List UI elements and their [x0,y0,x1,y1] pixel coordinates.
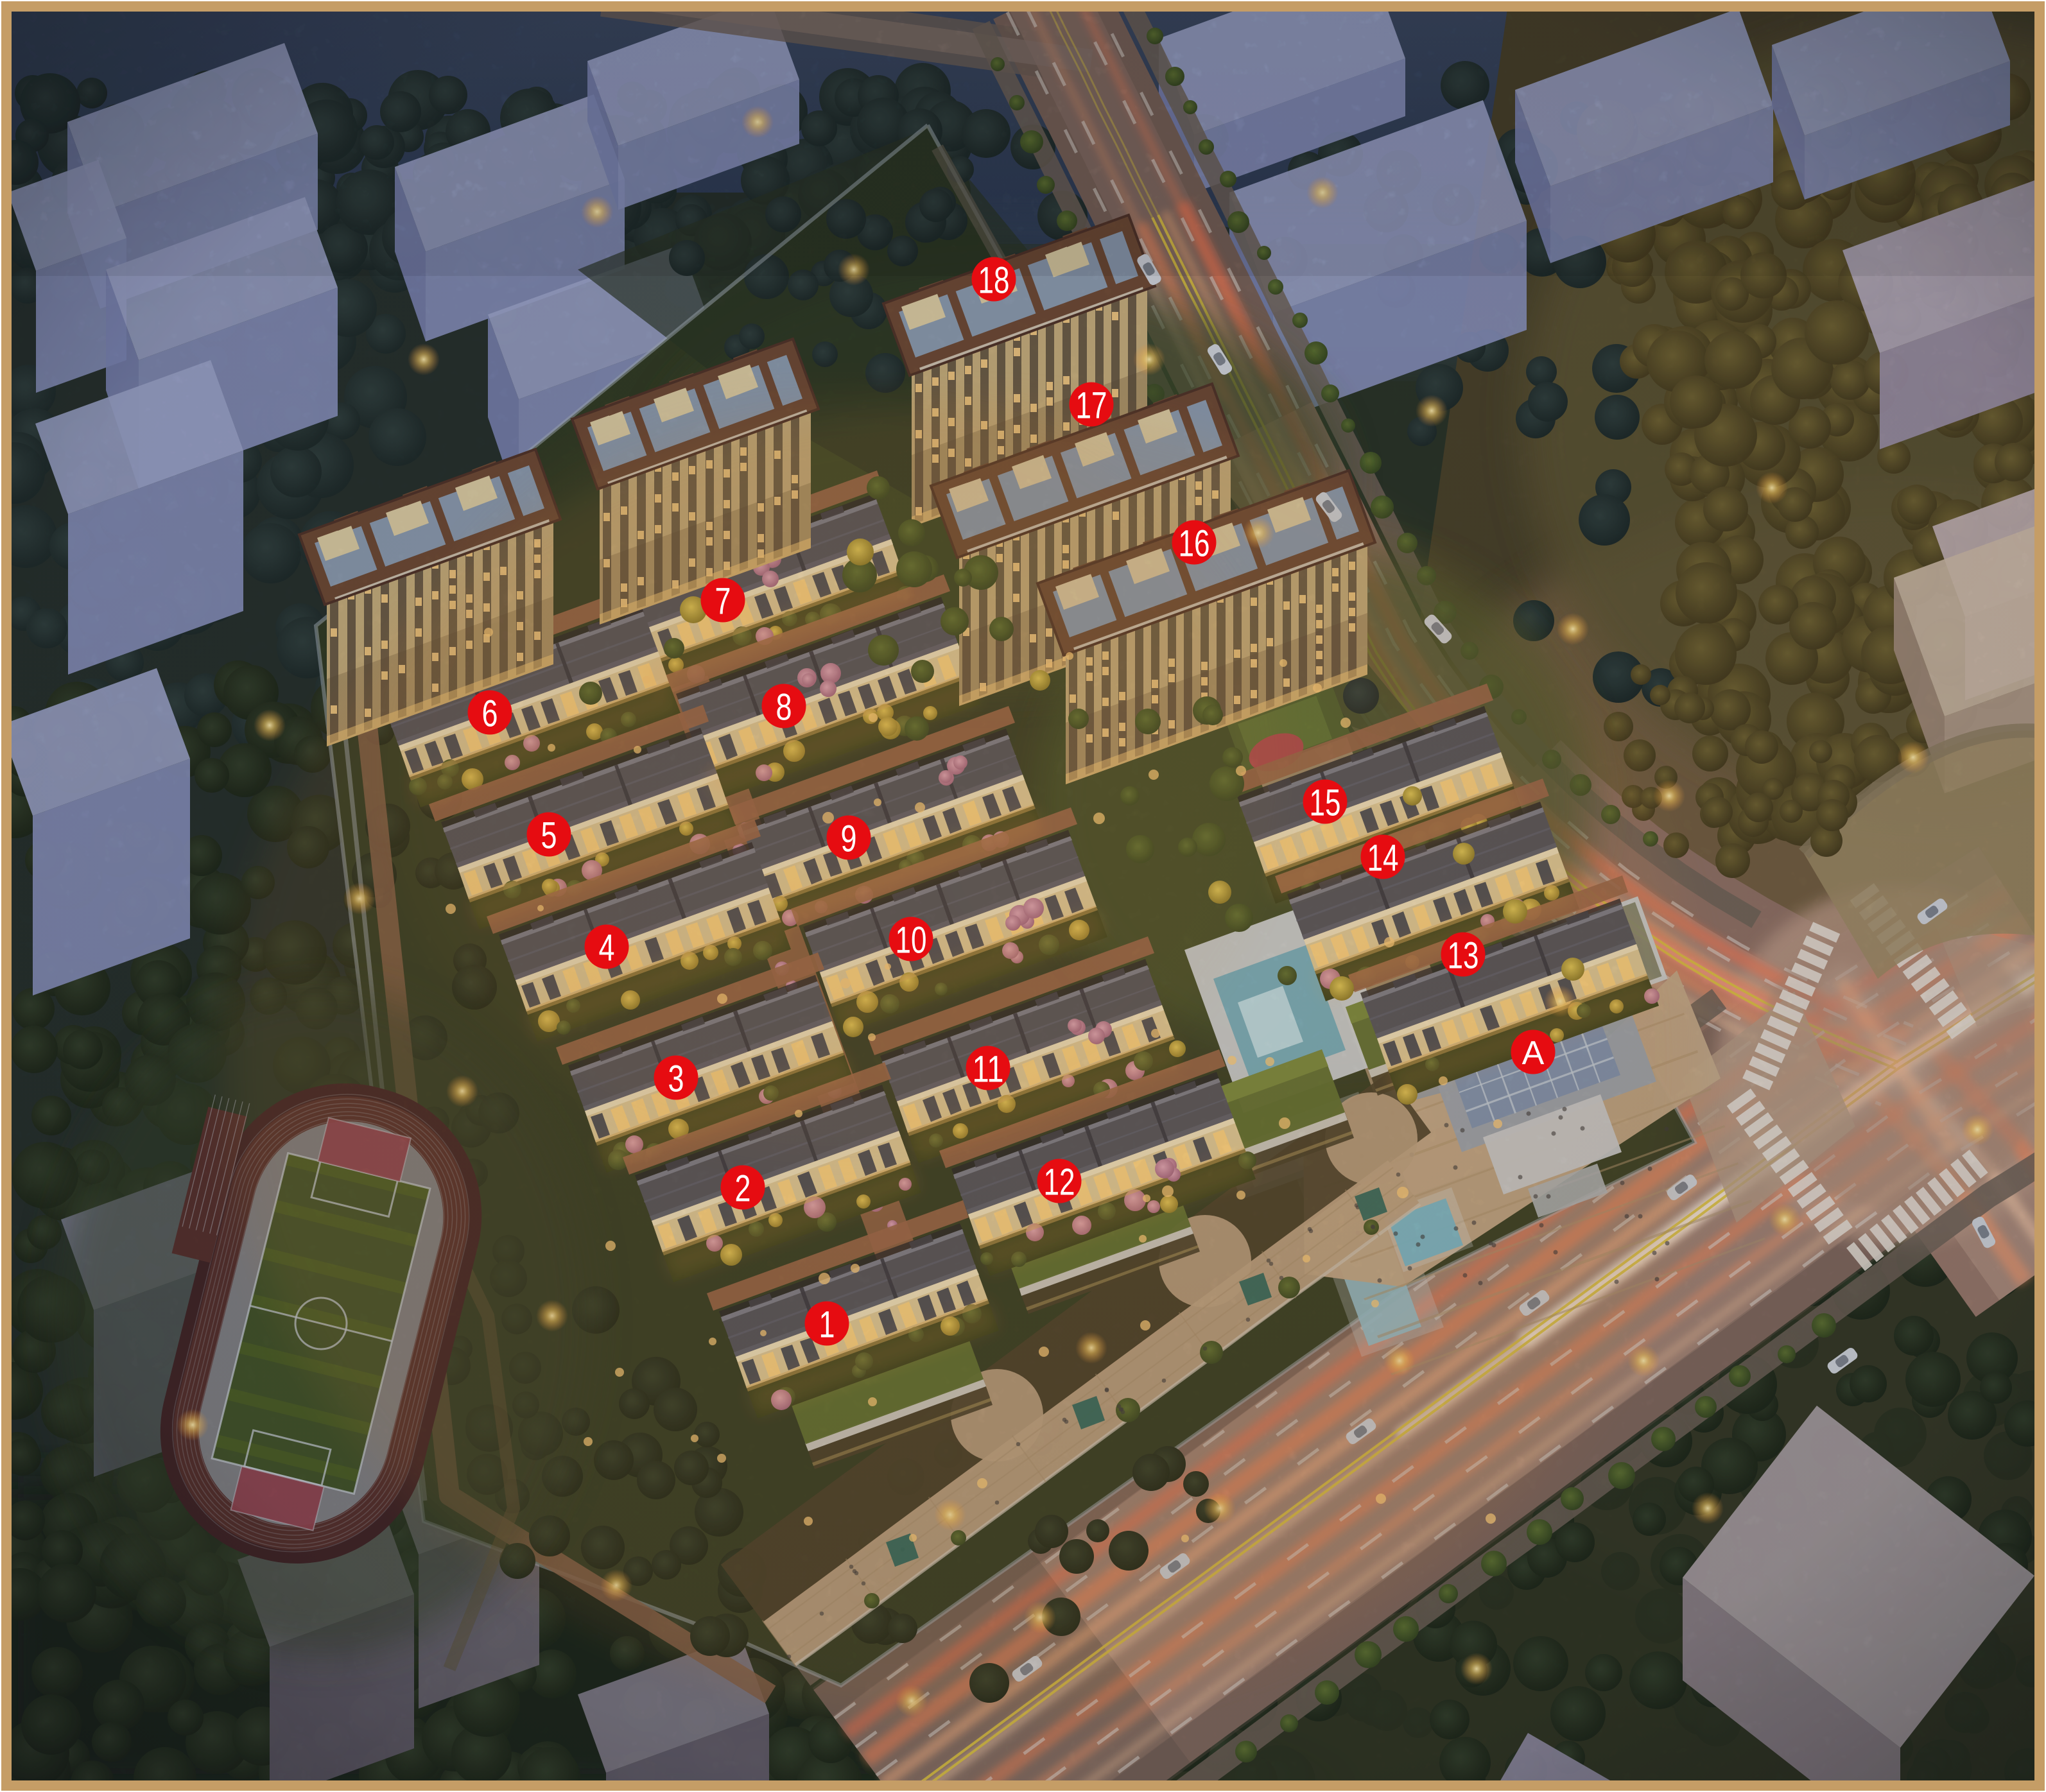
svg-text:14: 14 [1367,838,1399,879]
svg-text:5: 5 [541,815,557,857]
svg-text:16: 16 [1179,523,1210,565]
svg-text:A: A [1522,1035,1545,1072]
svg-text:1: 1 [819,1304,835,1346]
svg-text:2: 2 [735,1168,751,1210]
svg-text:17: 17 [1076,385,1107,427]
svg-text:10: 10 [896,920,927,961]
svg-text:7: 7 [715,581,731,623]
svg-text:18: 18 [978,260,1010,302]
svg-text:13: 13 [1448,935,1479,977]
svg-text:12: 12 [1044,1162,1075,1203]
svg-text:11: 11 [973,1049,1004,1090]
svg-text:3: 3 [668,1058,684,1100]
svg-text:4: 4 [599,927,615,969]
svg-text:9: 9 [841,818,857,860]
svg-text:15: 15 [1310,782,1341,824]
svg-text:8: 8 [776,687,792,728]
svg-text:6: 6 [482,693,498,735]
